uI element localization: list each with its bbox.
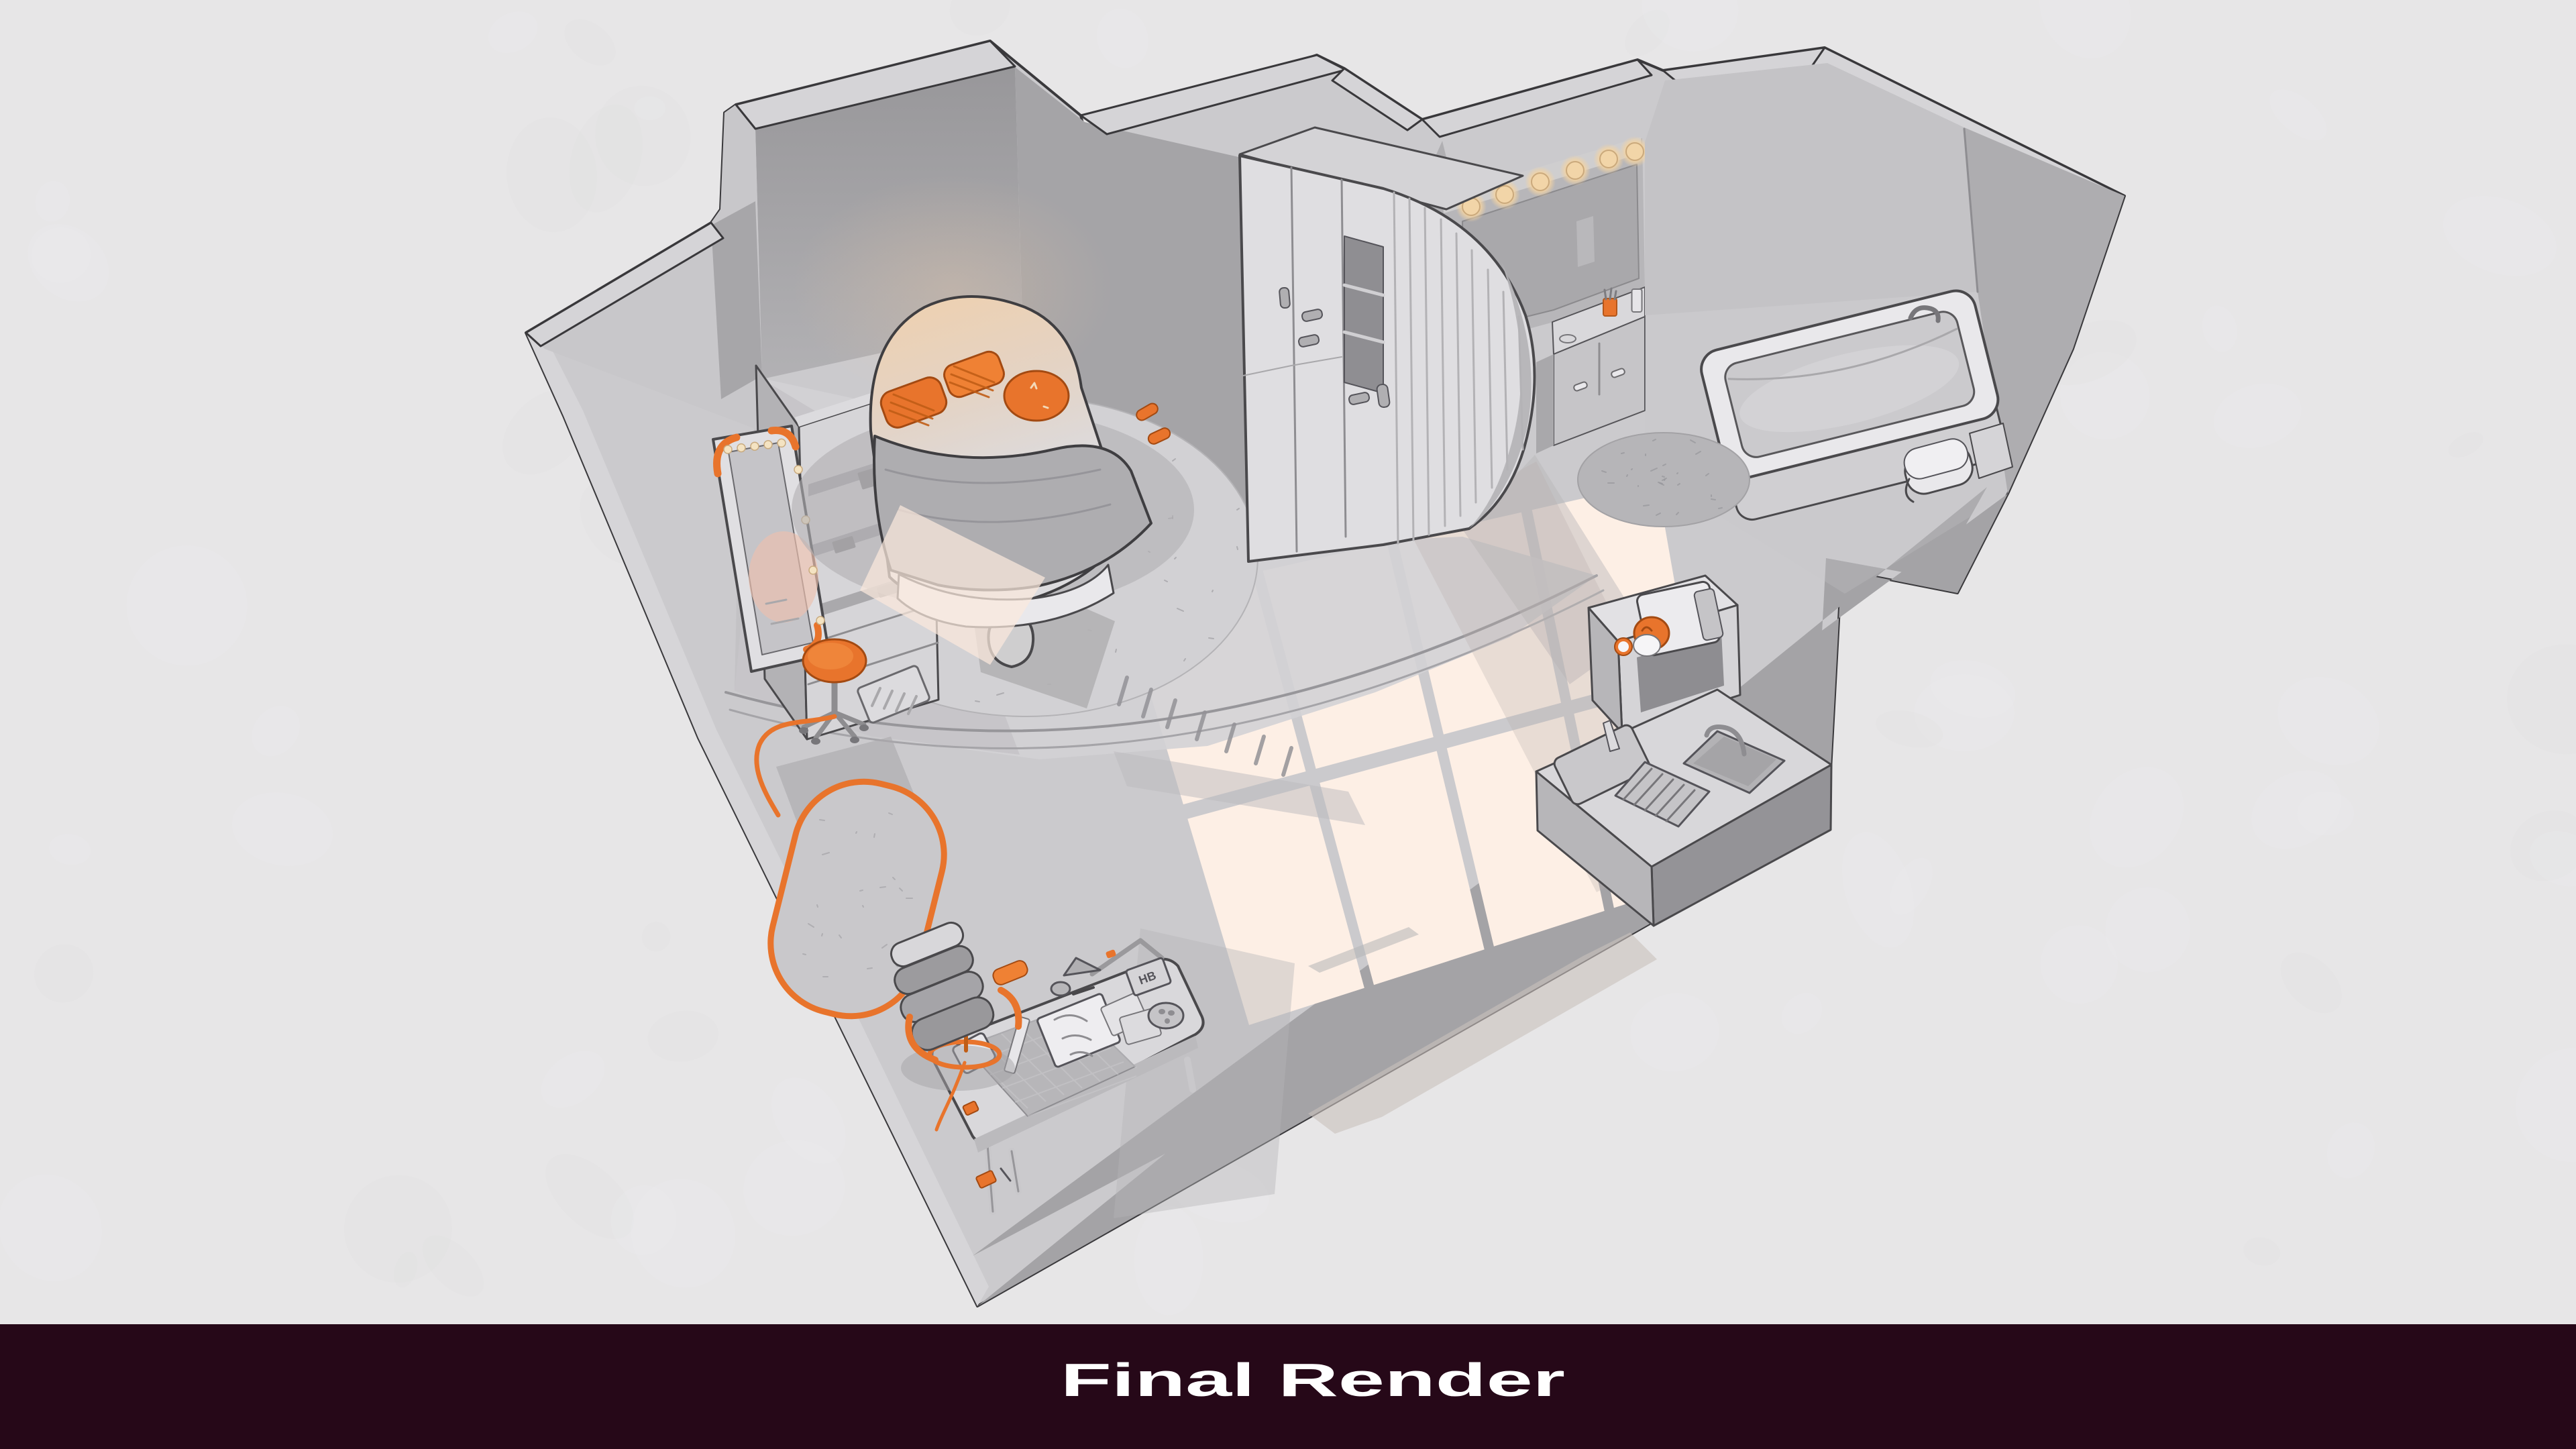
svg-text:Final Render: Final Render — [1061, 1354, 1565, 1406]
